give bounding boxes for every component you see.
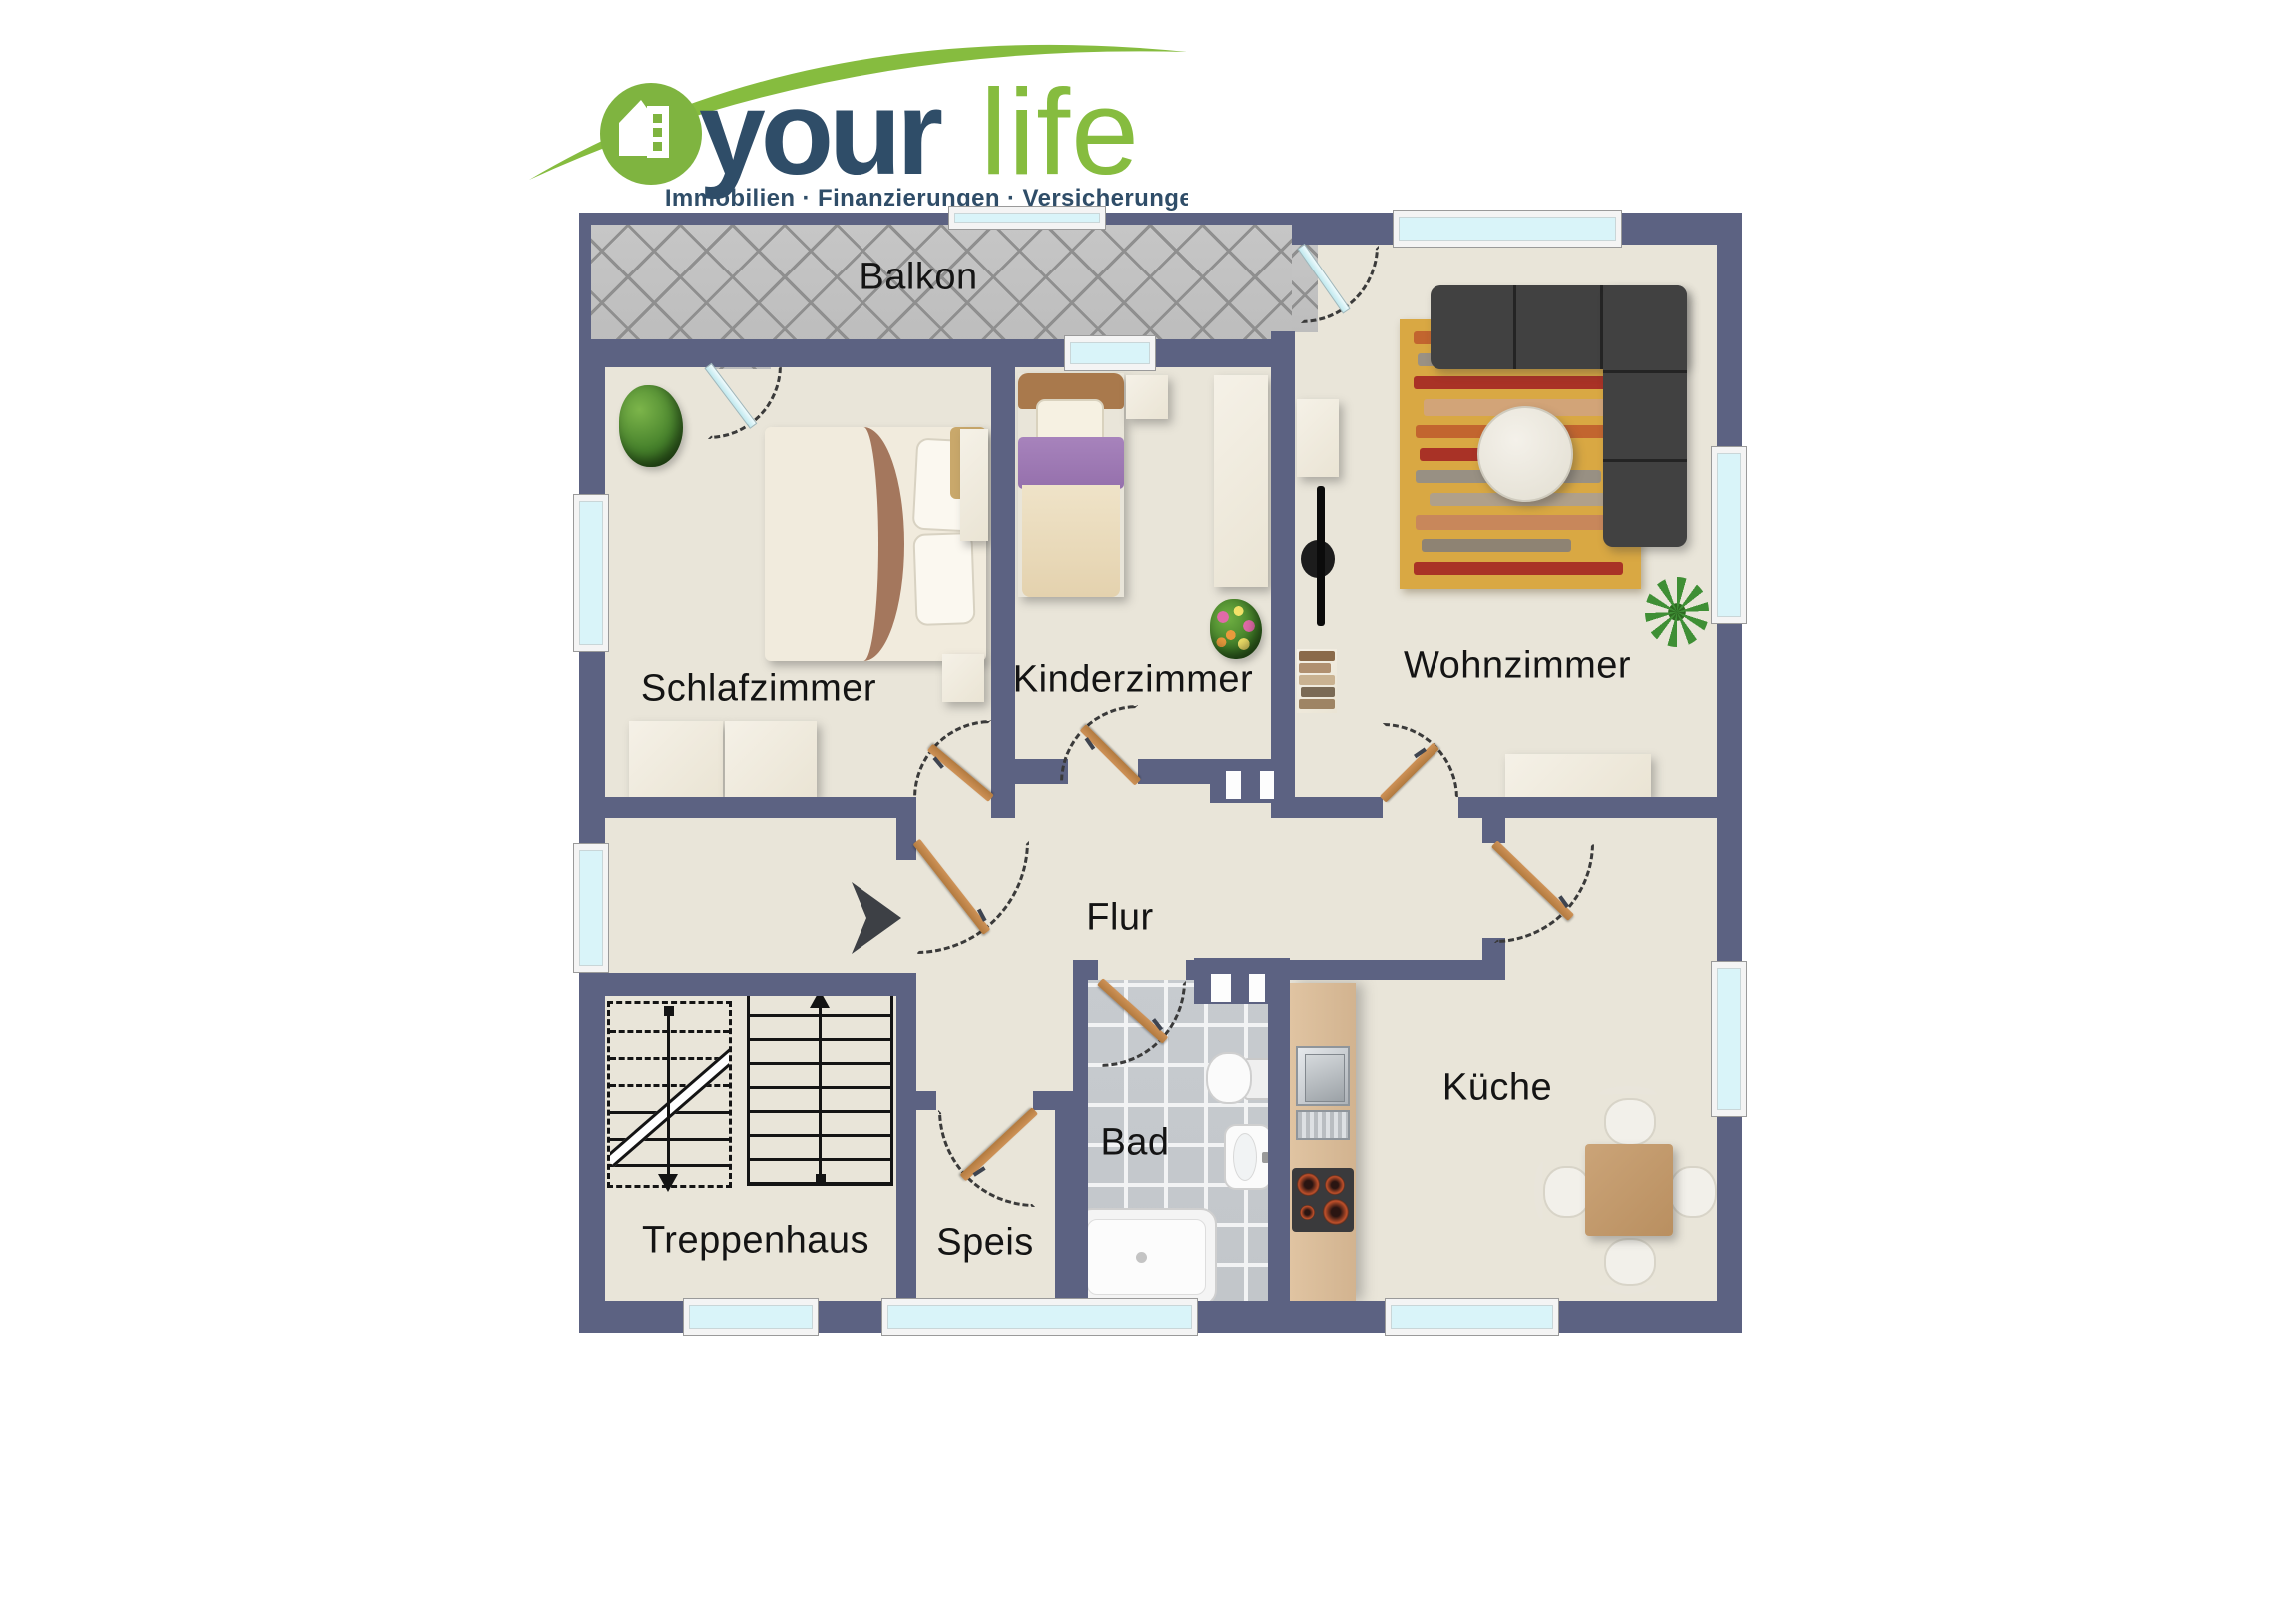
kitchen-counter — [1290, 983, 1356, 1301]
wall — [1717, 213, 1742, 1333]
room-label-kueche: Küche — [1442, 1067, 1552, 1110]
room-label-balkon: Balkon — [859, 257, 977, 299]
dresser — [725, 721, 817, 797]
window — [1711, 446, 1747, 624]
window — [881, 1298, 1198, 1336]
wall — [1055, 1091, 1088, 1303]
window — [573, 494, 609, 652]
stair-start-marker — [816, 1174, 826, 1184]
room-label-wohnzimmer: Wohnzimmer — [1404, 645, 1631, 688]
wall — [991, 367, 1015, 818]
page-root: { "logo": { "brand_first": "your", "bran… — [0, 0, 2296, 1623]
room-label-schlafzimmer: Schlafzimmer — [641, 668, 876, 711]
plant — [619, 385, 683, 467]
wardrobe — [1214, 375, 1268, 587]
wall — [604, 797, 913, 818]
washbasin — [1224, 1124, 1272, 1190]
window — [1393, 210, 1622, 248]
sideboard — [1505, 754, 1651, 797]
coffee-table — [1477, 406, 1573, 502]
single-bed — [1018, 373, 1124, 597]
kitchen-sink — [1296, 1046, 1350, 1106]
bathtub — [1076, 1208, 1217, 1306]
wall — [579, 213, 1295, 225]
plant — [1210, 599, 1262, 659]
wall — [896, 973, 916, 1303]
wall — [1073, 960, 1098, 980]
wall — [579, 973, 896, 996]
room-label-bad: Bad — [1100, 1122, 1169, 1165]
window — [1064, 335, 1156, 371]
dish-drainer — [1296, 1110, 1350, 1140]
room-label-kinderzimmer: Kinderzimmer — [1013, 659, 1253, 702]
wall-shelf — [1297, 399, 1339, 477]
tv-screen — [1317, 486, 1325, 626]
tv — [1297, 486, 1341, 626]
nightstand — [942, 654, 984, 702]
stairs-center-line — [819, 998, 822, 1180]
blanket — [1018, 437, 1124, 489]
plant — [1645, 577, 1709, 647]
wall — [579, 339, 605, 1333]
room-label-treppenhaus: Treppenhaus — [642, 1220, 869, 1263]
stove — [1292, 1168, 1354, 1232]
corner-sofa — [1603, 285, 1687, 547]
wall — [1268, 960, 1290, 1303]
window — [1711, 961, 1747, 1117]
chimney-slot — [1226, 771, 1241, 799]
floorplan: Balkon Schlafzimmer Kinderzimmer Wohnzim… — [0, 0, 2296, 1623]
dresser — [629, 721, 723, 797]
toilet — [1206, 1052, 1252, 1104]
bed-frame — [823, 427, 904, 661]
chimney-shaft — [1194, 958, 1290, 1004]
window — [573, 843, 609, 973]
wall — [896, 797, 916, 860]
wall — [579, 213, 591, 342]
window — [1385, 1298, 1559, 1336]
pillow — [912, 532, 975, 626]
room-label-flur: Flur — [1086, 897, 1153, 940]
chimney-slot — [1211, 974, 1231, 1002]
wall — [1482, 818, 1505, 843]
wall — [1271, 331, 1295, 818]
stair-direction-down-arrow — [658, 1174, 678, 1192]
stair-start-marker — [664, 1006, 674, 1016]
double-bed — [765, 427, 986, 661]
dining-table — [1585, 1144, 1673, 1236]
wall — [1292, 213, 1318, 245]
wall — [579, 339, 1295, 367]
nightstand — [1126, 375, 1168, 419]
room-label-speis: Speis — [936, 1222, 1034, 1265]
book-stack — [1297, 649, 1337, 713]
bed-mattress — [1022, 485, 1120, 597]
window — [683, 1298, 819, 1336]
chimney-slot — [1249, 974, 1265, 1002]
wardrobe — [960, 429, 988, 541]
stairs-center-line — [667, 1010, 670, 1176]
chimney-slot — [1260, 771, 1274, 799]
wall — [896, 1091, 936, 1110]
wall — [1271, 797, 1383, 818]
wall — [1482, 938, 1505, 980]
wall — [1458, 797, 1719, 818]
window — [948, 206, 1106, 230]
